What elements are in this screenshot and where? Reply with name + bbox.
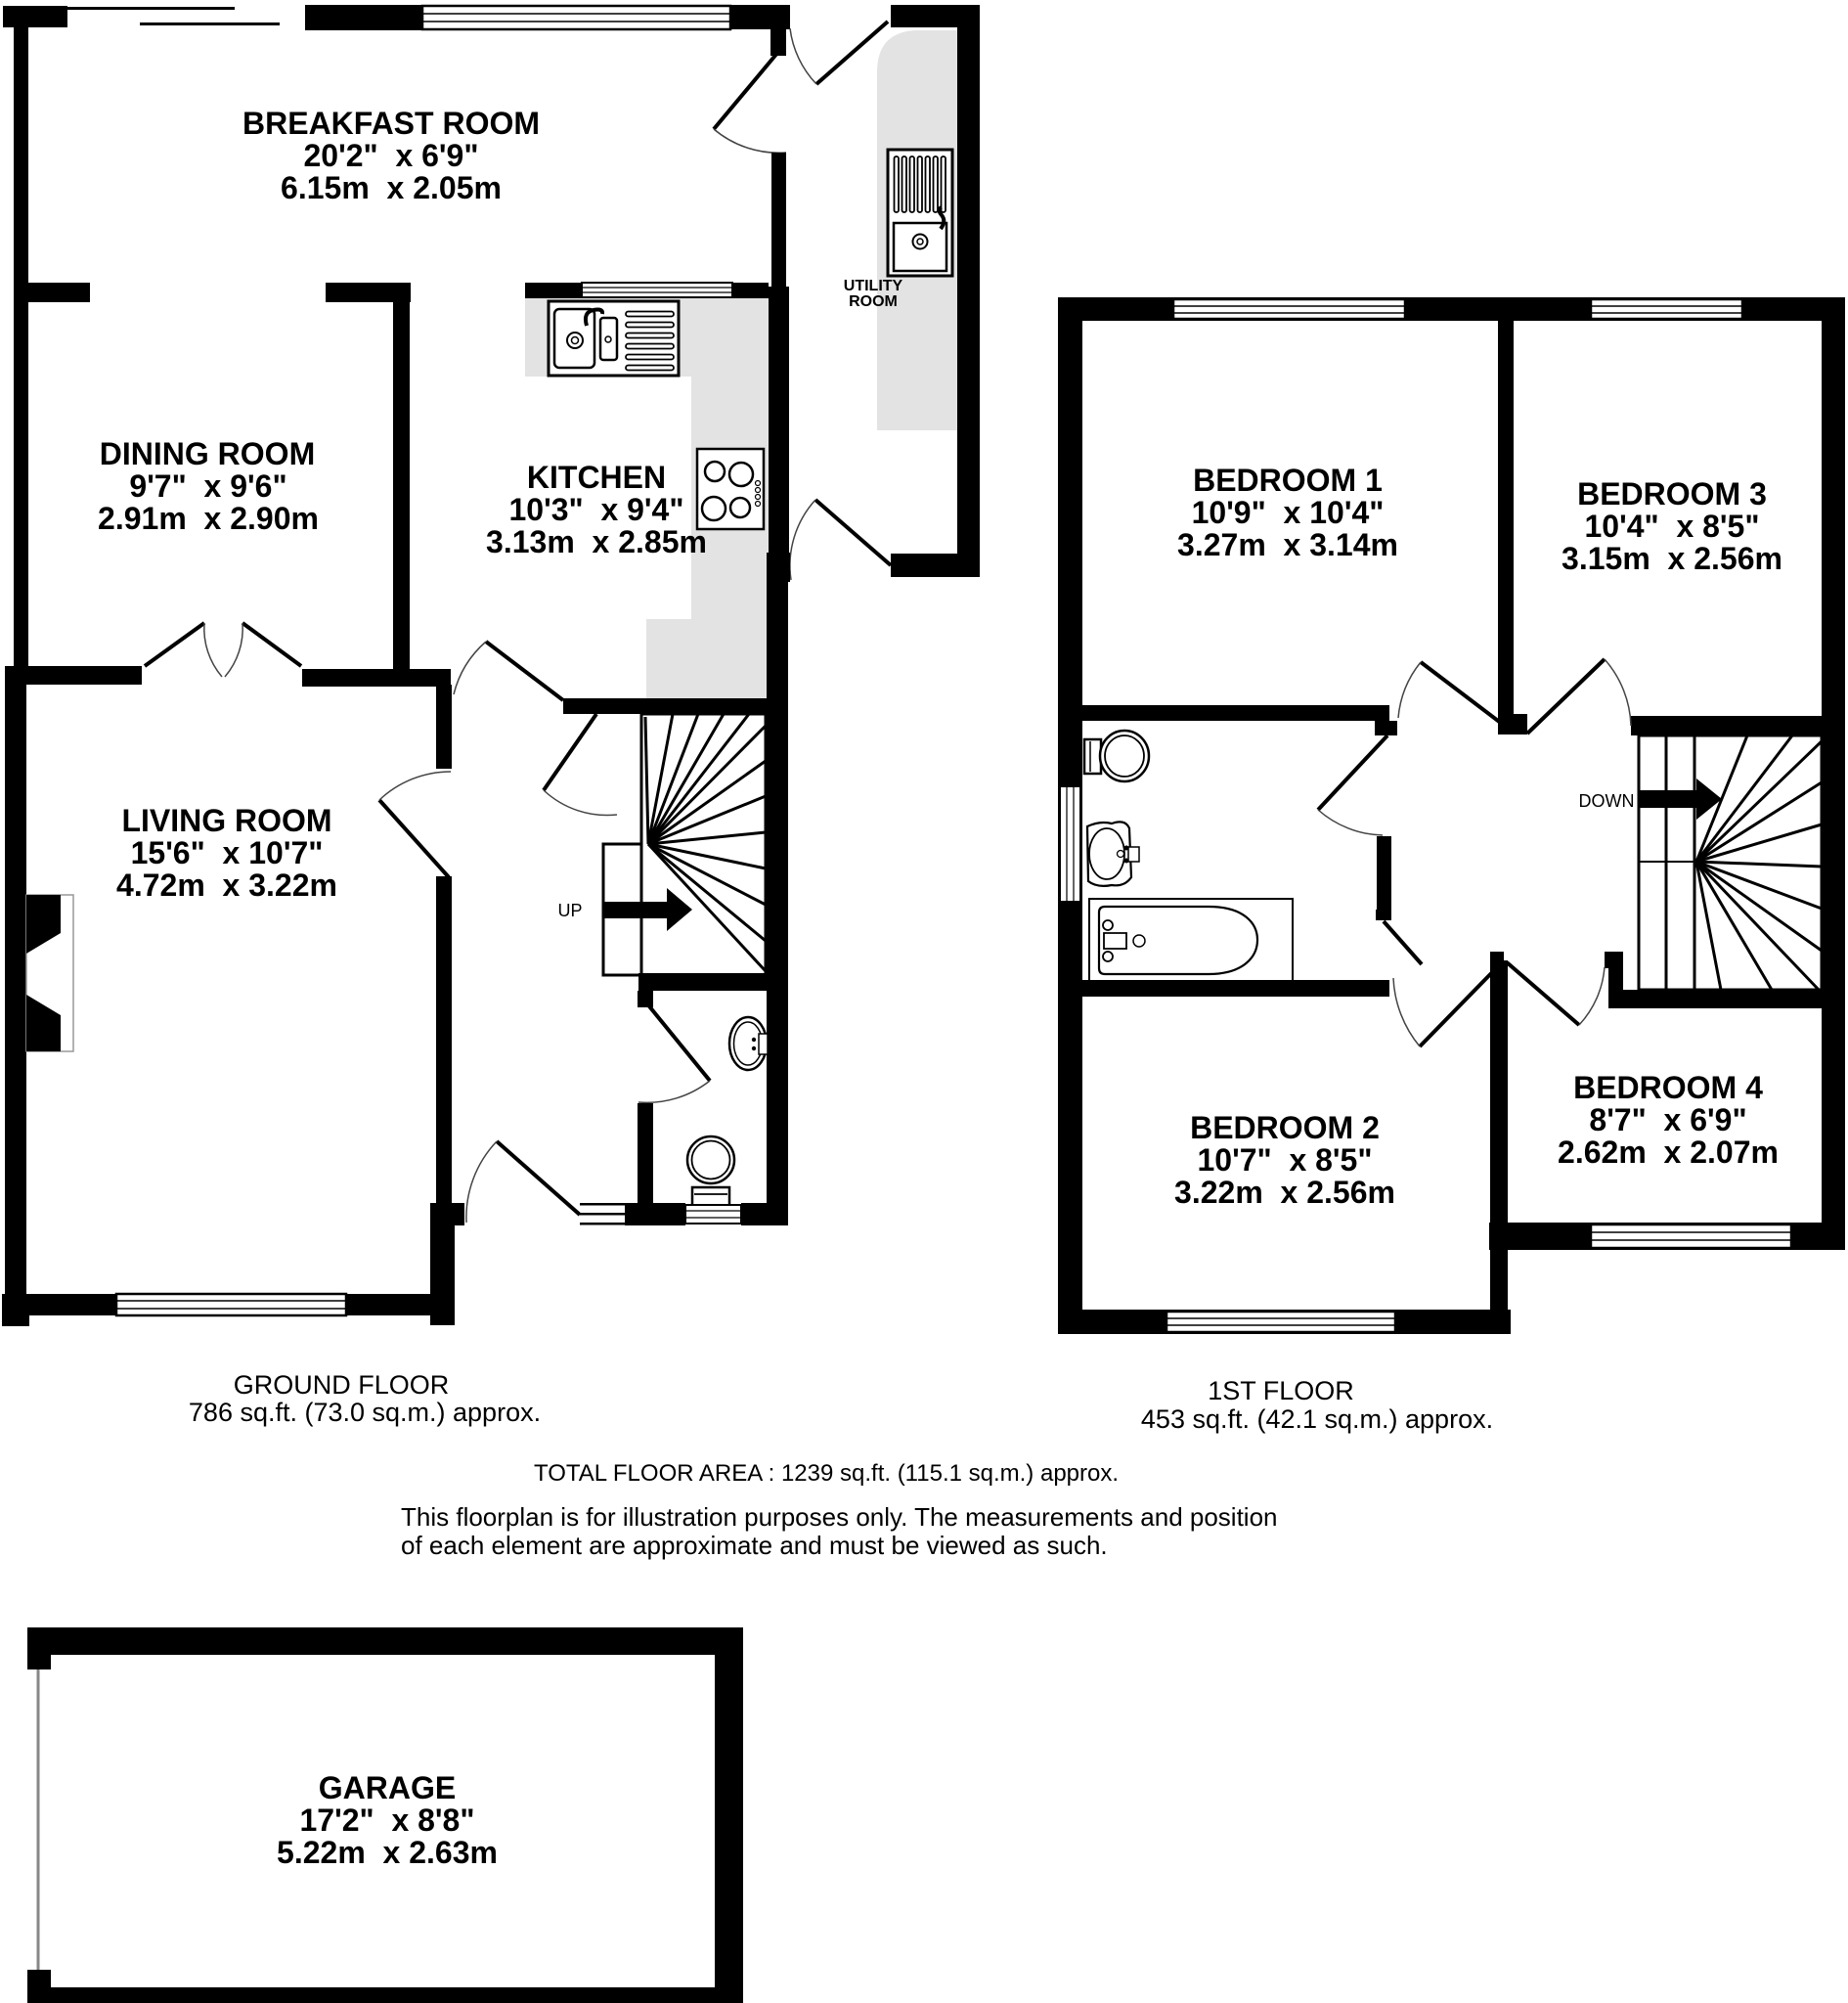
svg-text:453 sq.ft. (42.1 sq.m.) approx: 453 sq.ft. (42.1 sq.m.) approx. [1141, 1404, 1493, 1434]
svg-text:TOTAL FLOOR AREA : 1239 sq.ft.: TOTAL FLOOR AREA : 1239 sq.ft. (115.1 sq… [534, 1460, 1119, 1487]
svg-text:GROUND FLOOR: GROUND FLOOR [234, 1370, 450, 1400]
svg-text:3.13m x 2.85m: 3.13m x 2.85m [486, 524, 707, 559]
svg-text:ROOM: ROOM [849, 293, 898, 310]
svg-text:2.62m x 2.07m: 2.62m x 2.07m [1558, 1135, 1779, 1170]
svg-text:10'9" x 10'4": 10'9" x 10'4" [1192, 495, 1385, 530]
svg-text:3.15m x 2.56m: 3.15m x 2.56m [1562, 541, 1782, 576]
svg-text:LIVING ROOM: LIVING ROOM [121, 803, 331, 838]
svg-text:10'7" x 8'5": 10'7" x 8'5" [1197, 1142, 1372, 1178]
svg-text:5.22m x 2.63m: 5.22m x 2.63m [277, 1835, 498, 1870]
svg-text:UP: UP [557, 901, 582, 920]
svg-text:BEDROOM 2: BEDROOM 2 [1190, 1110, 1380, 1145]
svg-text:This floorplan is for illustra: This floorplan is for illustration purpo… [401, 1502, 1278, 1532]
svg-text:8'7" x 6'9": 8'7" x 6'9" [1589, 1102, 1746, 1137]
svg-text:10'4" x 8'5": 10'4" x 8'5" [1584, 509, 1759, 544]
svg-text:9'7" x 9'6": 9'7" x 9'6" [129, 468, 286, 504]
svg-text:6.15m x 2.05m: 6.15m x 2.05m [281, 170, 502, 205]
svg-text:15'6" x 10'7": 15'6" x 10'7" [131, 835, 324, 870]
svg-text:of each element are approximat: of each element are approximate and must… [401, 1531, 1108, 1560]
svg-text:DINING ROOM: DINING ROOM [100, 436, 315, 471]
svg-text:BEDROOM 3: BEDROOM 3 [1577, 476, 1767, 512]
svg-text:UTILITY: UTILITY [844, 278, 903, 294]
svg-text:BEDROOM 1: BEDROOM 1 [1193, 463, 1383, 498]
svg-text:2.91m x 2.90m: 2.91m x 2.90m [98, 501, 319, 536]
svg-text:3.22m x 2.56m: 3.22m x 2.56m [1174, 1175, 1395, 1210]
svg-text:20'2" x 6'9": 20'2" x 6'9" [303, 138, 478, 173]
svg-text:10'3" x 9'4": 10'3" x 9'4" [508, 492, 683, 527]
svg-text:GARAGE: GARAGE [319, 1770, 456, 1805]
svg-text:1ST FLOOR: 1ST FLOOR [1208, 1376, 1354, 1405]
svg-text:786 sq.ft. (73.0 sq.m.) approx: 786 sq.ft. (73.0 sq.m.) approx. [189, 1398, 541, 1427]
svg-text:3.27m x 3.14m: 3.27m x 3.14m [1177, 527, 1398, 562]
svg-text:4.72m x 3.22m: 4.72m x 3.22m [116, 868, 337, 903]
svg-text:BEDROOM 4: BEDROOM 4 [1573, 1070, 1763, 1105]
svg-text:KITCHEN: KITCHEN [527, 460, 666, 495]
svg-text:BREAKFAST ROOM: BREAKFAST ROOM [242, 106, 540, 141]
svg-text:DOWN: DOWN [1579, 791, 1635, 811]
svg-text:17'2" x 8'8": 17'2" x 8'8" [299, 1803, 474, 1838]
